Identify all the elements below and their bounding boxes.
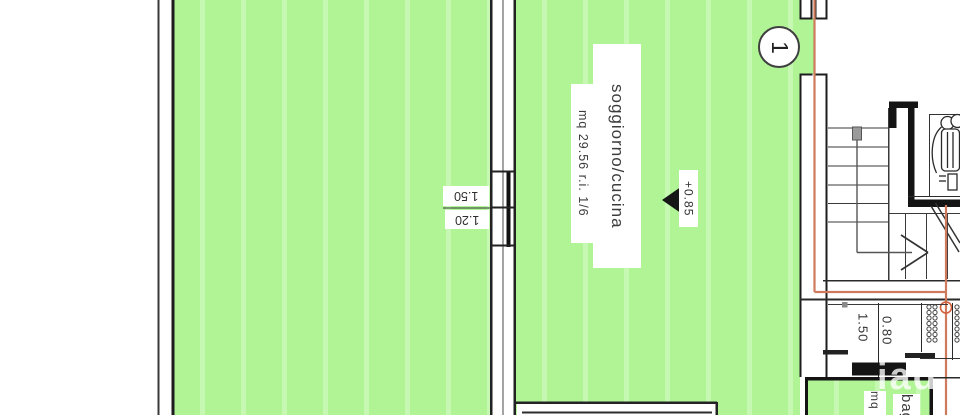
room-living-name: soggiorno/cucina [607,84,627,229]
armchair-fixture-icon [932,115,960,191]
radiator-icon-right [955,305,959,342]
room-living-label: soggiorno/cucina [593,44,641,268]
floor-plan-canvas: soggiorno/cucina mq 29.56 r.i. 1/6 +0.85… [0,0,960,415]
level-marker-triangle-icon [662,188,680,213]
floorplan-linework [0,0,960,415]
room-living-area-label: mq 29.56 r.i. 1/6 [571,84,595,243]
niche-dimension-depth: 0.80 [876,308,898,354]
window-dimension-width: 1.50 [443,186,489,206]
walls [159,0,828,415]
niche-dimension-width: 1.50 [852,306,874,350]
room-living-area: mq 29.56 r.i. 1/6 [576,110,590,217]
terrace-edge [516,402,717,415]
radiator-icon [927,305,959,342]
window-dimension-opening: 1.20 [445,210,489,229]
level-marker-value: +0.85 [679,170,698,227]
stair-number: 1 [765,41,792,54]
agency-watermark: iad [877,358,938,396]
stair-number-badge: 1 [758,26,800,68]
